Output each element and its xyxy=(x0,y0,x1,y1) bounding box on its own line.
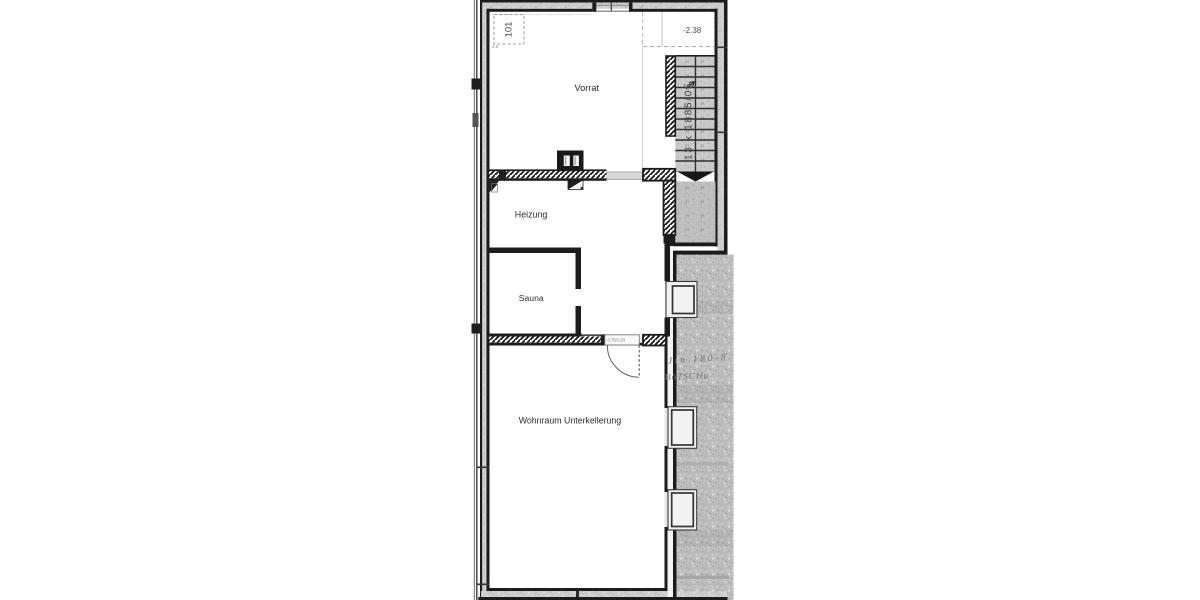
svg-text:0.76/1.93: 0.76/1.93 xyxy=(608,338,626,343)
svg-text:101: 101 xyxy=(504,22,515,38)
svg-text:BöTSCHu: BöTSCHu xyxy=(665,370,710,382)
svg-text:Sauna: Sauna xyxy=(519,293,544,303)
svg-text:-2.38: -2.38 xyxy=(683,26,702,35)
svg-text:13 x 1885/05: 13 x 1885/05 xyxy=(684,82,695,160)
svg-text:2.5: 2.5 xyxy=(492,44,499,49)
svg-text:Wohnraum Unterkellerung: Wohnraum Unterkellerung xyxy=(519,416,622,426)
svg-text:Vorrat: Vorrat xyxy=(575,83,600,93)
svg-text:Heizung: Heizung xyxy=(515,209,548,219)
